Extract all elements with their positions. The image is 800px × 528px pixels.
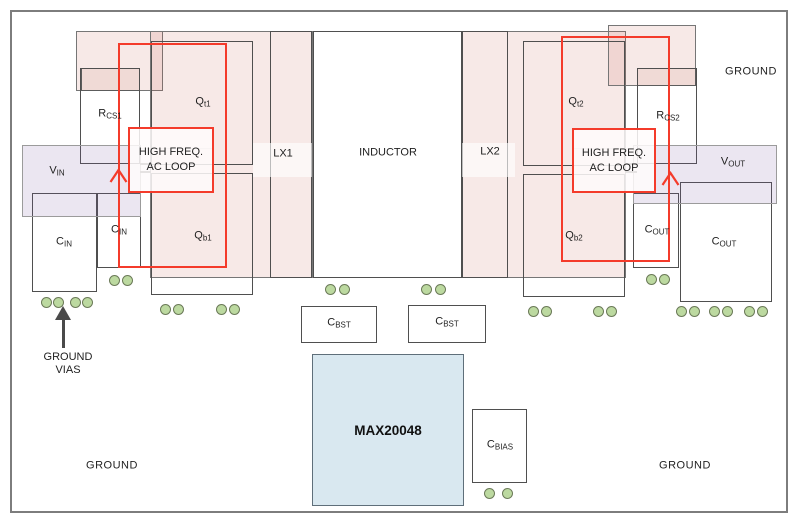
ground-via: [722, 306, 733, 317]
ground-via: [82, 297, 93, 308]
ground-via: [109, 275, 120, 286]
ground-via: [70, 297, 81, 308]
ground-via: [659, 274, 670, 285]
max20048-label: MAX20048: [354, 423, 422, 438]
ground-via: [173, 304, 184, 315]
ground-via: [484, 488, 495, 499]
cin-small-label: CIN: [111, 224, 127, 239]
lx1-label: LX1: [273, 148, 293, 161]
ground-vias-line2: VIAS: [44, 364, 93, 377]
lx2-label: LX2: [480, 146, 500, 159]
hf-loop-left-line2: AC LOOP: [147, 160, 196, 175]
cout-small-label: COUT: [645, 224, 670, 239]
ground-vias-callout: GROUND VIAS: [44, 351, 93, 377]
ground-via: [541, 306, 552, 317]
ground-via: [502, 488, 513, 499]
hf-ac-loop-right-callout: HIGH FREQ. AC LOOP: [572, 128, 656, 193]
ground-vias-arrow-head: [55, 306, 71, 320]
ground-via: [122, 275, 133, 286]
cin-large-label: CIN: [56, 236, 72, 251]
ground-via: [757, 306, 768, 317]
ground-via: [528, 306, 539, 317]
hf-ac-loop-left-callout: HIGH FREQ. AC LOOP: [128, 127, 214, 193]
qt1-label: Qt1: [195, 96, 210, 111]
ground-via: [593, 306, 604, 317]
ground-vias-line1: GROUND: [44, 351, 93, 364]
loop-arrow-up-left: [108, 167, 129, 184]
qt2-label: Qt2: [568, 96, 583, 111]
ground-via: [689, 306, 700, 317]
ground-via: [606, 306, 617, 317]
ground-via: [325, 284, 336, 295]
vin-label: VIN: [49, 165, 64, 180]
inductor-label: INDUCTOR: [359, 147, 417, 160]
ground-label-top-right: GROUND: [725, 66, 777, 79]
pcb-layout-diagram: HIGH FREQ. AC LOOP HIGH FREQ. AC LOOP MA…: [0, 0, 800, 528]
ground-via: [229, 304, 240, 315]
ground-via: [421, 284, 432, 295]
qb2-label: Qb2: [565, 230, 582, 245]
ground-via: [339, 284, 350, 295]
loop-arrow-up-right: [660, 170, 681, 187]
cout-large-label: COUT: [712, 236, 737, 251]
cbst-left-label: CBST: [327, 317, 351, 332]
ground-via: [646, 274, 657, 285]
ground-via: [41, 297, 52, 308]
ground-via: [709, 306, 720, 317]
hf-loop-right-line1: HIGH FREQ.: [582, 146, 646, 161]
ground-via: [676, 306, 687, 317]
rcs1-label: RCS1: [98, 108, 122, 123]
ground-via: [435, 284, 446, 295]
qb1-label: Qb1: [194, 230, 211, 245]
ground-vias-arrow-shaft: [62, 319, 66, 348]
rcs2-label: RCS2: [656, 110, 680, 125]
max20048-ic-body: MAX20048: [312, 354, 464, 506]
vout-label: VOUT: [721, 156, 745, 171]
hf-loop-left-line1: HIGH FREQ.: [139, 145, 203, 160]
hf-loop-right-line2: AC LOOP: [590, 161, 639, 176]
ground-via: [160, 304, 171, 315]
ground-label-bottom-left: GROUND: [86, 460, 138, 473]
cbst-right-label: CBST: [435, 316, 459, 331]
ground-via: [216, 304, 227, 315]
cbias-label: CBIAS: [487, 439, 513, 454]
ground-label-bottom-right: GROUND: [659, 460, 711, 473]
ground-via: [744, 306, 755, 317]
